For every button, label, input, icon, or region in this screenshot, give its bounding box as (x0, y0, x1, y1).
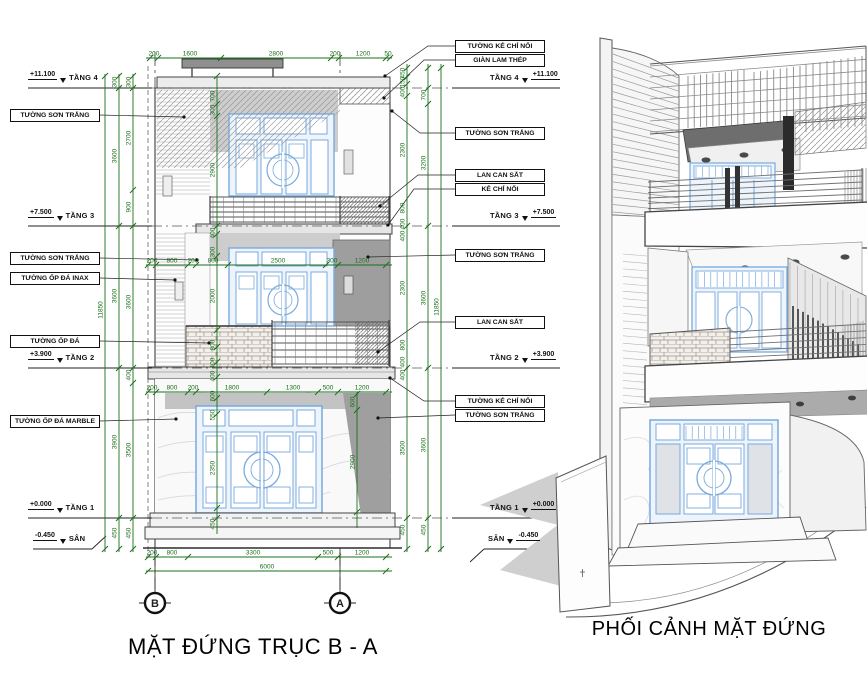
brick-balustrade (186, 326, 272, 367)
dim-label: 300 (126, 76, 133, 87)
dim-label: 3600 (126, 294, 133, 309)
floor3-wall-lamp-right (344, 276, 353, 294)
level-triangle-icon (522, 508, 528, 513)
callout-lan-can-sat-1: LAN CAN SẮT (455, 169, 545, 182)
grid-bubble-b-label: B (151, 598, 159, 610)
callout-tuong-ke-chi-noi-1: TƯỜNG KẺ CHỈ NỔI (455, 40, 545, 53)
callout-tuong-son-trang-2: TƯỜNG SƠN TRẮNG (10, 252, 100, 265)
grid-bubble-a-label: A (336, 598, 344, 610)
dim-label: 2900 (350, 454, 357, 469)
callout-tuong-op-da: TƯỜNG ỐP ĐÁ (10, 335, 100, 348)
dim-label: 2800 (269, 51, 284, 58)
roof-slab (157, 77, 390, 88)
level-marker-san-left: -0.450SÂN (33, 532, 85, 544)
callout-gian-lam-thep: GIÀN LAM THÉP (455, 54, 545, 67)
drawing-canvas: B A (0, 0, 867, 680)
dim-label: 11850 (434, 298, 441, 316)
level-triangle-icon (57, 358, 63, 363)
dim-label: 600 (350, 396, 357, 407)
gate-panel (556, 456, 610, 612)
level-triangle-icon (60, 78, 66, 83)
level-triangle-icon (522, 78, 528, 83)
drawing-sheet: B A (0, 0, 867, 680)
shadow-wedge-1 (480, 472, 558, 525)
callout-tuong-son-trang-r3: TƯỜNG SƠN TRẮNG (455, 409, 545, 422)
roof-panel (182, 59, 283, 68)
dim-label: 200 (188, 258, 199, 265)
dim-label: 3500 (400, 440, 407, 455)
perspective-ground-door (650, 420, 778, 524)
level-triangle-icon (522, 358, 528, 363)
dim-label: 1800 (225, 385, 240, 392)
level-triangle-icon (57, 508, 63, 513)
dim-label: 800 (167, 258, 178, 265)
dim-label: 150 (400, 76, 407, 87)
level-triangle-icon (57, 216, 63, 221)
level-marker-t3-left: +7.500TẦNG 3 (28, 209, 94, 221)
dim-label: 3500 (126, 442, 133, 457)
dim-label: 450 (112, 527, 119, 538)
dim-label: 200 (330, 51, 341, 58)
dim-label: 200 (147, 550, 158, 557)
dim-label: 300 (210, 104, 217, 115)
dim-label: 2300 (400, 280, 407, 295)
downlight-icon (702, 157, 711, 162)
dim-label: 1200 (355, 385, 370, 392)
dim-label: 1600 (183, 51, 198, 58)
level-marker-t3-right: TẦNG 3+7.500 (490, 209, 556, 221)
dim-label: 200 (188, 385, 199, 392)
downlight-icon (848, 396, 856, 401)
level-triangle-icon (507, 539, 513, 544)
dim-label: 200 (149, 51, 160, 58)
dim-label: 2350 (210, 460, 217, 475)
callout-lan-can-sat-2: LAN CAN SẮT (455, 316, 545, 329)
dim-label: 3300 (246, 550, 261, 557)
callout-ke-chi-noi: KẺ CHỈ NỔI (455, 183, 545, 196)
dim-label: 800 (167, 550, 178, 557)
floor3-wall-lamp-left (175, 282, 183, 300)
dim-label: 1200 (356, 51, 371, 58)
callout-tuong-op-da-marble: TƯỜNG ỐP ĐÁ MARBLE (10, 415, 100, 428)
level-triangle-icon (60, 539, 66, 544)
plinth (150, 513, 395, 527)
level-marker-t1-right: TẦNG 1+0.000 (490, 501, 556, 513)
dim-label: 400 (210, 227, 217, 238)
floor4-window (344, 150, 353, 174)
dim-label: 400 (400, 356, 407, 367)
callout-tuong-son-trang-r1: TƯỜNG SƠN TRẮNG (455, 127, 545, 140)
downlight-icon (796, 402, 804, 407)
parapet-hatch (340, 88, 390, 104)
dim-label: 700 (421, 89, 428, 100)
dim-label: 800 (400, 202, 407, 213)
elevation-ground-floor (143, 379, 402, 548)
dim-label: 800 (167, 385, 178, 392)
dim-label: 400 (210, 357, 217, 368)
dim-label: 450 (400, 524, 407, 535)
black-post (783, 116, 794, 190)
dim-label: 800 (210, 339, 217, 350)
callout-tuong-ke-chi-noi-2: TƯỜNG KẺ CHỈ NỔI (455, 395, 545, 408)
dim-label: 3600 (112, 148, 119, 163)
dim-label: 2300 (400, 142, 407, 157)
level-marker-t2-right: TẦNG 2+3.900 (490, 351, 556, 363)
floor2-slab (148, 367, 395, 379)
dim-label: 300 (112, 76, 119, 87)
dim-label: 400 (400, 230, 407, 241)
dim-label: 600 (210, 390, 217, 401)
dim-label: 200 (147, 258, 158, 265)
dim-label: 1200 (355, 550, 370, 557)
dim-label: 300 (327, 258, 338, 265)
dim-label: 500 (323, 385, 334, 392)
dim-label: 450 (421, 524, 428, 535)
dim-label: 2700 (126, 130, 133, 145)
ground-door (196, 406, 322, 513)
dim-label: 2900 (210, 162, 217, 177)
floor3-slab (196, 224, 392, 234)
downlight-icon (841, 254, 850, 259)
callout-tuong-son-trang-r2: TƯỜNG SƠN TRẮNG (455, 249, 545, 262)
dim-label: 1200 (355, 258, 370, 265)
dim-label: 3600 (421, 437, 428, 452)
dim-label: 200 (147, 385, 158, 392)
dim-label: 2000 (210, 288, 217, 303)
dim-label: 400 (400, 369, 407, 380)
title-perspective: PHỐI CẢNH MẶT ĐỨNG (585, 618, 833, 641)
floor3-side-panel (333, 240, 390, 326)
level-marker-san-right: SÂN-0.450 (488, 532, 540, 544)
dim-label: 400 (126, 369, 133, 380)
dim-label: 700 (210, 90, 217, 101)
floor4-wall-lamp (163, 176, 172, 196)
dim-label: 500 (323, 550, 334, 557)
dim-label: 400 (400, 218, 407, 229)
plinth-step (145, 527, 400, 539)
level-marker-t1-left: +0.000TẦNG 1 (28, 501, 94, 513)
level-triangle-icon (522, 216, 528, 221)
grid-bubble-a: A (324, 548, 356, 613)
dim-label: 3200 (421, 155, 428, 170)
dim-label: 3600 (421, 290, 428, 305)
dim-label: 2500 (271, 258, 286, 265)
rounded-corner-wall (790, 415, 866, 532)
dim-label: 900 (126, 201, 133, 212)
callout-tuong-son-trang-1: TƯỜNG SƠN TRẮNG (10, 109, 100, 122)
dim-label: 450 (126, 527, 133, 538)
callout-tuong-op-da-inax: TƯỜNG ỐP ĐÁ INAX (10, 272, 100, 285)
dim-label: 550 (210, 409, 217, 420)
floor4-railing-end (340, 197, 389, 224)
level-marker-t2-left: +3.900TẦNG 2 (28, 351, 94, 363)
level-marker-t4-left: +11.100TẦNG 4 (28, 71, 98, 83)
dim-label: 3900 (112, 434, 119, 449)
downlight-icon (740, 152, 749, 157)
dim-label: 3600 (112, 288, 119, 303)
title-elevation: MẶT ĐỨNG TRỤC B - A (128, 634, 378, 660)
dim-label: 11850 (98, 301, 105, 319)
elevation-floor3 (148, 233, 395, 379)
dim-label: 300 (210, 246, 217, 257)
dim-label: 800 (400, 339, 407, 350)
dim-label: 450 (210, 518, 217, 529)
dim-label: 400 (400, 86, 407, 97)
dim-label: 1300 (286, 385, 301, 392)
dim-label: 6000 (260, 564, 275, 571)
level-marker-t4-right: TẦNG 4+11.100 (490, 71, 560, 83)
dim-label: 50 (384, 51, 392, 58)
floor3-railing-end (355, 321, 389, 365)
dim-label: 400 (210, 370, 217, 381)
